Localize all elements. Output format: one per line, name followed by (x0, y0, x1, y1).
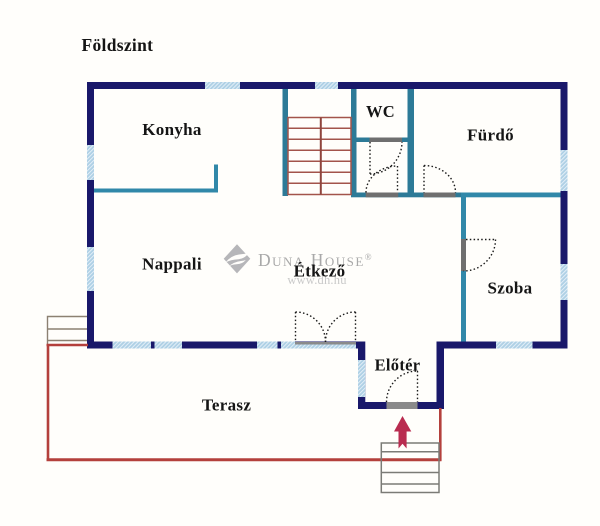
svg-text:Szoba: Szoba (488, 279, 533, 298)
svg-text:Fürdő: Fürdő (467, 126, 514, 145)
svg-text:Konyha: Konyha (142, 120, 202, 139)
svg-text:Étkező: Étkező (294, 262, 346, 281)
svg-text:Előtér: Előtér (375, 356, 421, 375)
svg-text:Terasz: Terasz (202, 396, 251, 415)
svg-text:Nappali: Nappali (142, 255, 202, 274)
svg-text:WC: WC (366, 102, 395, 121)
svg-text:Földszint: Földszint (82, 35, 154, 55)
